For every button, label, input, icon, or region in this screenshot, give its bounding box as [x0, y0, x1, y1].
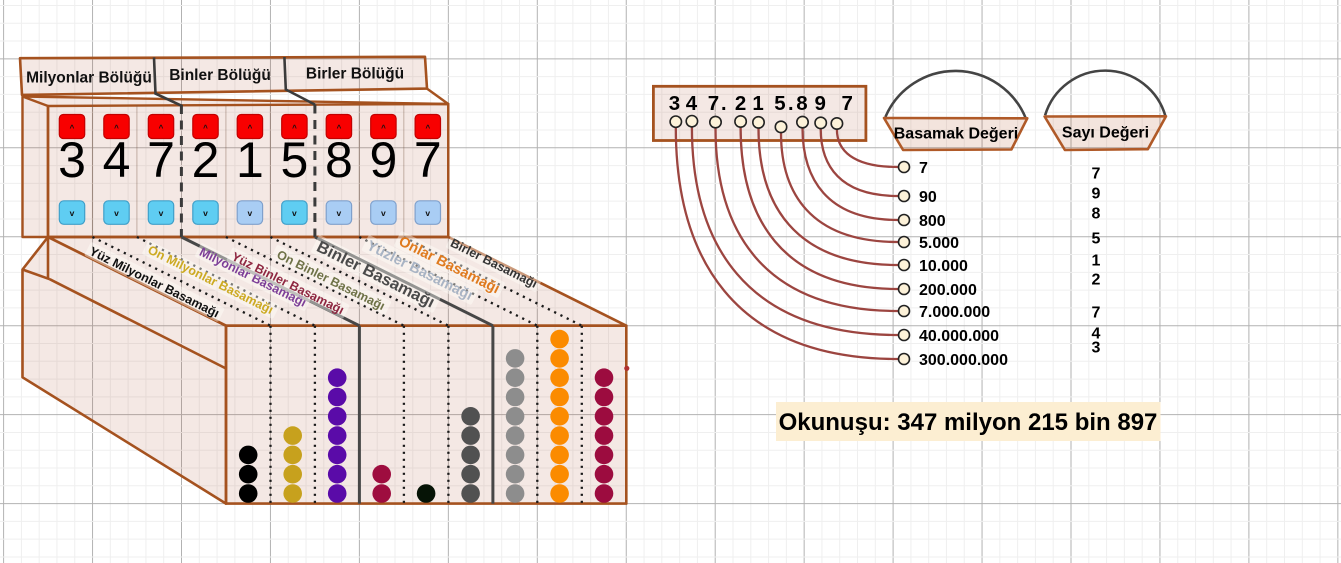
svg-text:7: 7: [708, 92, 719, 115]
svg-text:7: 7: [841, 92, 852, 115]
svg-text:5: 5: [1092, 231, 1101, 248]
svg-text:v: v: [292, 208, 297, 218]
svg-text:1: 1: [1092, 253, 1101, 270]
svg-text:v: v: [70, 208, 75, 218]
svg-text:2: 2: [1092, 272, 1101, 289]
svg-text:8: 8: [325, 132, 353, 188]
svg-text:2: 2: [735, 92, 746, 115]
svg-text:7: 7: [919, 160, 928, 177]
svg-text:4: 4: [686, 92, 698, 115]
svg-text:4: 4: [103, 132, 131, 188]
svg-text:.: .: [788, 93, 794, 115]
svg-text:10.000: 10.000: [919, 258, 968, 275]
svg-text:v: v: [381, 208, 386, 218]
svg-text:v: v: [114, 208, 119, 218]
svg-text:8: 8: [796, 92, 807, 115]
svg-text:90: 90: [919, 189, 937, 206]
svg-text:7: 7: [147, 132, 175, 188]
svg-text:v: v: [337, 208, 342, 218]
svg-text:v: v: [425, 208, 430, 218]
svg-text:7: 7: [1092, 166, 1101, 183]
svg-text:5: 5: [280, 132, 308, 188]
svg-text:v: v: [203, 208, 208, 218]
svg-text:v: v: [248, 208, 253, 218]
svg-text:40.000.000: 40.000.000: [919, 328, 999, 345]
svg-text:Basamak Değeri: Basamak Değeri: [894, 126, 1019, 143]
svg-text:8: 8: [1092, 206, 1101, 223]
svg-text:3: 3: [669, 92, 680, 115]
svg-text:1: 1: [236, 132, 264, 188]
svg-text:Okunuşu: 347 milyon 215 bin 89: Okunuşu: 347 milyon 215 bin 897: [779, 409, 1158, 436]
svg-text:7.000.000: 7.000.000: [919, 304, 990, 321]
svg-text:v: v: [159, 208, 164, 218]
svg-text:.: .: [721, 93, 727, 115]
svg-text:Birler Bölüğü: Birler Bölüğü: [306, 65, 404, 82]
svg-text:2: 2: [192, 132, 220, 188]
svg-text:7: 7: [414, 132, 442, 188]
svg-text:300.000.000: 300.000.000: [919, 352, 1008, 369]
svg-text:3: 3: [1092, 340, 1101, 357]
svg-text:3: 3: [58, 132, 86, 188]
svg-text:Binler Bölüğü: Binler Bölüğü: [169, 67, 271, 84]
svg-text:9: 9: [1092, 186, 1101, 203]
svg-text:800: 800: [919, 213, 946, 230]
svg-text:200.000: 200.000: [919, 282, 977, 299]
svg-text:5.000: 5.000: [919, 235, 959, 252]
svg-text:9: 9: [369, 132, 397, 188]
svg-text:Sayı Değeri: Sayı Değeri: [1062, 125, 1149, 142]
svg-text:1: 1: [752, 92, 763, 115]
svg-text:5: 5: [774, 92, 785, 115]
svg-text:Milyonlar Bölüğü: Milyonlar Bölüğü: [26, 69, 152, 86]
svg-text:9: 9: [814, 92, 825, 115]
svg-text:7: 7: [1092, 305, 1101, 322]
